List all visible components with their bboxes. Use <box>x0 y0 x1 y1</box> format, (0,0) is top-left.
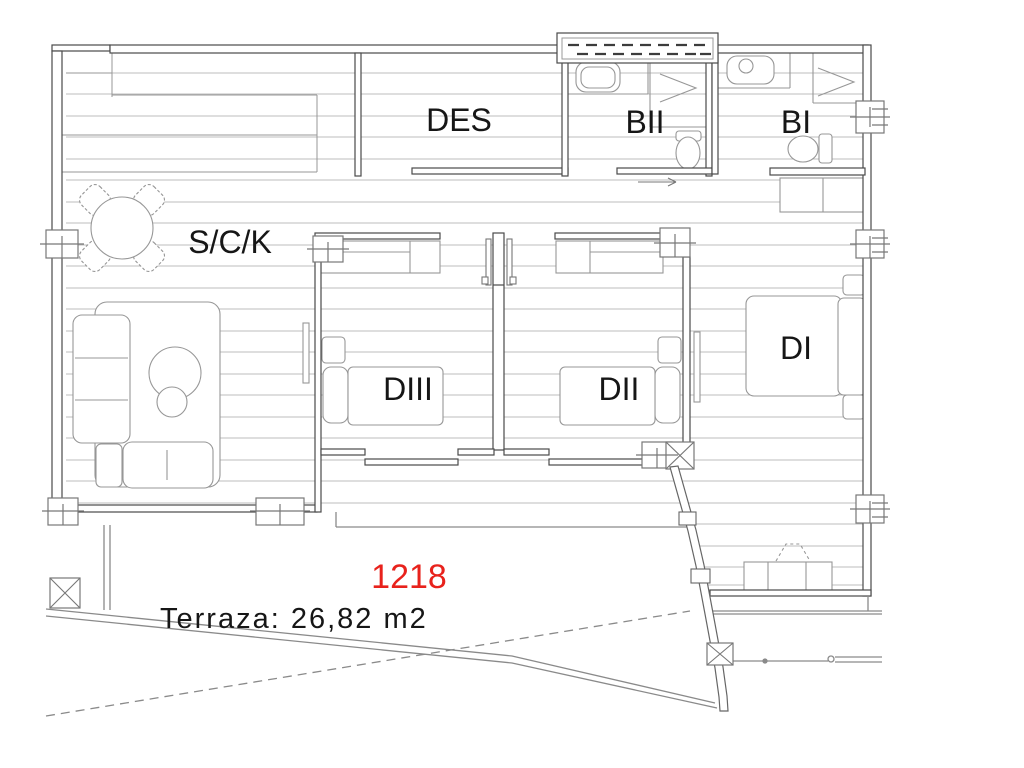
room-label-diii: DIII <box>383 371 433 407</box>
wall-top <box>110 45 868 53</box>
headboard-di <box>838 298 866 395</box>
wall-bii-left <box>562 61 568 176</box>
wardrobe-di <box>780 178 870 212</box>
coffee-table-small <box>157 387 187 417</box>
wall-des-left <box>355 53 361 176</box>
wall-diii-bottom-left <box>321 449 365 455</box>
wall-top-left <box>52 45 110 51</box>
railing-hook <box>828 656 834 662</box>
door-stop <box>510 277 516 284</box>
wall-des-bottom <box>412 168 568 174</box>
wardrobe-dii <box>556 241 663 273</box>
diagonal-wall-jog <box>679 512 696 525</box>
unit-number-label: 1218 <box>371 558 447 596</box>
wall-bii-bottom <box>617 168 712 174</box>
wall-di-bottom <box>710 590 871 596</box>
room-label-dii: DII <box>599 371 640 407</box>
wall-dii-bottom-left <box>504 449 549 455</box>
railing-dot <box>763 659 767 663</box>
floor-plan-page: DES BII BI S/C/K DIII DII DI 1218 Terraz… <box>0 0 1024 768</box>
wall-dii-sill <box>549 459 644 465</box>
pillow-dii <box>655 367 680 423</box>
kitchen-counter-lines <box>62 53 317 172</box>
toilet-bi-tank <box>819 134 832 163</box>
pillow-diii <box>323 367 348 423</box>
wall-bi-left <box>712 53 718 174</box>
terrace-inner-edge <box>336 512 692 527</box>
floor-plan-drawing: DES BII BI S/C/K DIII DII DI 1218 Terraz… <box>0 0 1024 768</box>
room-label-bii: BII <box>625 104 664 140</box>
railing-right <box>732 657 882 662</box>
wall-bi-bottom <box>770 168 865 175</box>
room-label-sck: S/C/K <box>188 224 272 260</box>
wall-dii-di <box>683 257 690 444</box>
wall-partition <box>493 233 504 450</box>
room-label-bi: BI <box>781 104 811 140</box>
door-slide-arrow-bii <box>638 178 676 186</box>
shower-bi-icon <box>818 68 854 96</box>
room-label-des: DES <box>426 102 492 138</box>
sofa-seat <box>123 442 213 488</box>
tv-di <box>776 544 810 561</box>
nightstand-di-top <box>843 275 865 295</box>
labels-layer: DES BII BI S/C/K DIII DII DI 1218 Terraz… <box>160 102 812 635</box>
door-stop <box>482 277 488 284</box>
wall-dii-top <box>555 233 663 239</box>
room-label-di: DI <box>780 330 812 366</box>
nightstand-dii <box>658 337 681 363</box>
dresser-di <box>744 562 832 592</box>
nightstand-diii <box>322 337 345 363</box>
side-seat <box>96 444 122 487</box>
wall-left <box>52 51 62 512</box>
sink-bi-basin <box>739 59 753 73</box>
radiator-living <box>303 323 309 383</box>
wall-bii-right <box>706 61 712 176</box>
wall-diii-bottom-right <box>458 449 494 455</box>
sink-bii-basin <box>581 67 615 88</box>
dining-table <box>91 197 153 259</box>
wall-diii-left <box>315 238 321 512</box>
toilet-bii-bowl <box>676 137 700 169</box>
diagonal-wall-jog <box>691 569 710 583</box>
vent-shaft <box>557 33 718 63</box>
terrace-area-label: Terraza: 26,82 m2 <box>160 603 428 635</box>
walkway-edge <box>712 596 882 614</box>
nightstand-di-bottom <box>843 395 865 419</box>
wall-diii-sill <box>365 459 458 465</box>
sofa <box>73 315 130 443</box>
radiator-di <box>694 332 700 402</box>
shower-bii-icon <box>660 74 696 102</box>
kitchen-area <box>62 53 317 172</box>
terrace-side-wall <box>104 525 110 610</box>
